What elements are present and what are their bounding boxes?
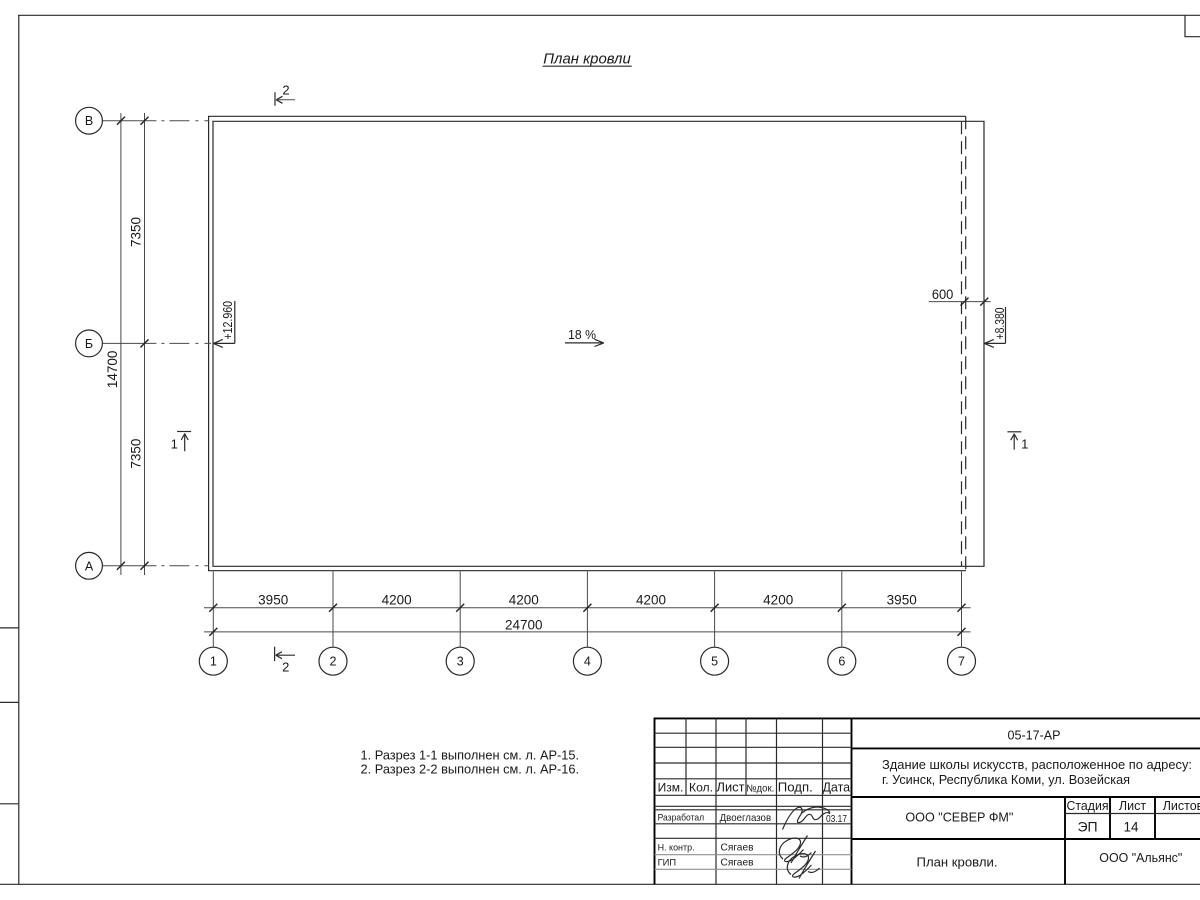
svg-text:24700: 24700	[505, 617, 543, 632]
svg-text:Листов: Листов	[1163, 799, 1200, 813]
svg-text:Сягаев: Сягаев	[721, 842, 754, 854]
svg-text:Подп.: Подп.	[778, 781, 813, 795]
svg-text:5: 5	[711, 655, 718, 669]
svg-text:А: А	[85, 559, 94, 573]
svg-text:05-17-АР: 05-17-АР	[1008, 728, 1061, 743]
svg-text:г. Усинск, Республика Коми, ул: г. Усинск, Республика Коми, ул. Возейска…	[882, 772, 1130, 787]
svg-text:Кол.: Кол.	[689, 781, 713, 795]
svg-text:Здание школы искусств, располо: Здание школы искусств, расположенное по …	[882, 757, 1192, 772]
svg-text:6: 6	[838, 655, 845, 669]
svg-text:7: 7	[958, 655, 965, 669]
svg-text:600: 600	[932, 287, 954, 302]
svg-text:7350: 7350	[129, 439, 144, 469]
svg-text:Сягаев: Сягаев	[721, 857, 754, 869]
svg-text:Дата: Дата	[822, 781, 850, 795]
svg-text:План кровли: План кровли	[543, 52, 631, 68]
svg-text:4200: 4200	[509, 593, 539, 608]
svg-text:7350: 7350	[129, 217, 144, 247]
svg-text:№док.: №док.	[746, 784, 774, 795]
svg-text:3950: 3950	[258, 593, 288, 608]
svg-text:03.17: 03.17	[826, 813, 847, 825]
svg-text:3950: 3950	[887, 593, 917, 608]
svg-text:1. Разрез 1-1 выполнен см. л.: 1. Разрез 1-1 выполнен см. л. АР-15.	[361, 748, 580, 763]
svg-text:14700: 14700	[105, 351, 120, 389]
svg-text:4: 4	[584, 655, 591, 669]
svg-text:Двоеглазов: Двоеглазов	[720, 812, 772, 824]
svg-text:Лист: Лист	[1119, 799, 1146, 813]
svg-text:1: 1	[210, 655, 217, 669]
svg-text:Разработал: Разработал	[658, 813, 705, 824]
svg-text:4200: 4200	[382, 593, 412, 608]
svg-text:18 %: 18 %	[568, 327, 596, 342]
svg-text:4200: 4200	[636, 593, 666, 608]
svg-text:Изм.: Изм.	[658, 781, 684, 795]
svg-text:Лист: Лист	[717, 781, 745, 795]
svg-text:1: 1	[1021, 437, 1028, 452]
svg-text:+8.380: +8.380	[992, 308, 1007, 340]
svg-text:Н. контр.: Н. контр.	[658, 843, 695, 854]
svg-text:3: 3	[457, 655, 464, 669]
svg-text:ООО "Альянс": ООО "Альянс"	[1099, 850, 1182, 865]
svg-text:ГИП: ГИП	[658, 858, 677, 869]
svg-text:14: 14	[1123, 820, 1139, 835]
svg-text:+12.960: +12.960	[220, 301, 235, 340]
svg-text:2. Разрез 2-2 выполнен см. л.: 2. Разрез 2-2 выполнен см. л. АР-16.	[361, 762, 580, 777]
svg-text:2: 2	[282, 660, 289, 675]
svg-text:ЭП: ЭП	[1077, 819, 1097, 835]
svg-text:Стадия: Стадия	[1067, 799, 1109, 813]
svg-text:ООО "СЕВЕР ФМ": ООО "СЕВЕР ФМ"	[905, 810, 1013, 825]
svg-text:1: 1	[171, 437, 178, 452]
svg-text:В: В	[85, 114, 93, 128]
svg-text:Б: Б	[85, 337, 93, 351]
svg-text:План кровли.: План кровли.	[917, 855, 998, 870]
svg-text:2: 2	[330, 655, 337, 669]
svg-text:4200: 4200	[763, 593, 793, 608]
svg-text:2: 2	[282, 83, 289, 98]
